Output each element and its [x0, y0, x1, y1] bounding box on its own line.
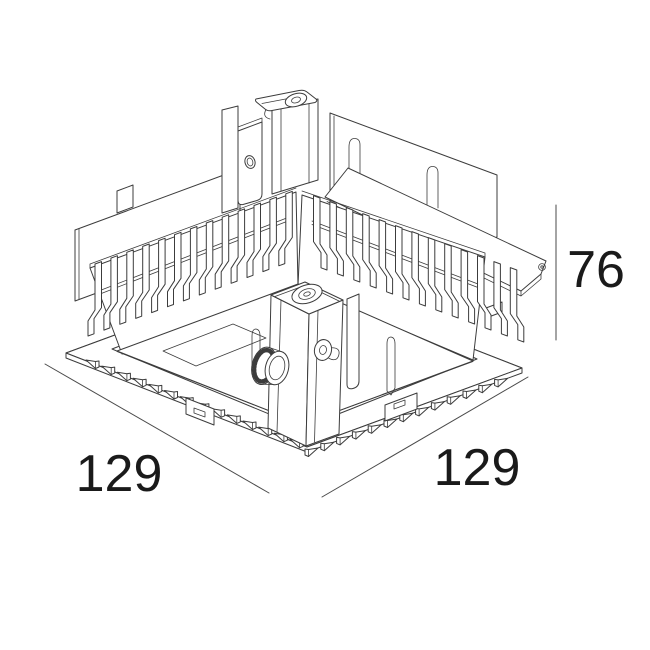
bracket-column — [272, 99, 318, 194]
technical-drawing-luminaire: 129 129 76 — [0, 0, 650, 650]
dimension-label-height: 76 — [567, 241, 625, 299]
top-mounting-bracket — [238, 90, 318, 204]
box-side-bracket — [347, 294, 359, 389]
dimension-label-left: 129 — [76, 445, 163, 503]
drawing-canvas: 129 129 76 — [0, 0, 650, 650]
left-back-tab — [117, 185, 133, 213]
dimension-height: 76 — [556, 205, 625, 340]
dimension-label-right: 129 — [434, 439, 521, 497]
box-face-right — [306, 300, 343, 446]
